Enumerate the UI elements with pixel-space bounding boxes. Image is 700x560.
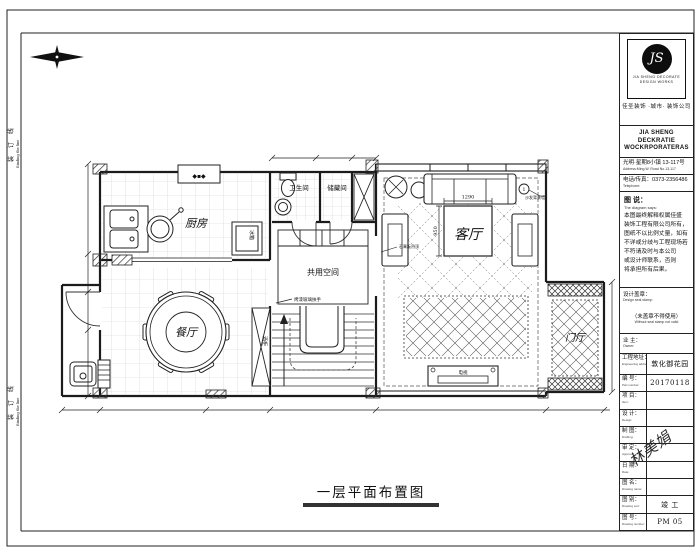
seal-warning-en: Without seal stamp not valid <box>623 320 690 324</box>
table-row-item: 项 目：Item: <box>620 392 693 409</box>
closet <box>354 174 374 220</box>
row-value <box>647 462 693 478</box>
plan-title: 一层平面布置图 <box>303 481 439 504</box>
row-value: 20170118 <box>647 375 693 391</box>
notes-line: 将承担所有后果。 <box>624 266 689 275</box>
row-label-en: Date: <box>622 470 644 474</box>
room-label-storage: 储藏间 <box>327 183 347 192</box>
row-label-en: Drafting: <box>622 435 644 439</box>
table-row-project-address: 工程地址：Engineering address: 敦化御花园 <box>620 354 693 375</box>
row-label: 图 号： <box>622 515 644 522</box>
row-value: 竣 工 <box>647 496 693 512</box>
address-cell: 光明·星期8小镇 13-117号 Address:Ming.W. Road No… <box>620 158 693 175</box>
logo-box: JS JIA SHENG DECORATE DESIGN WORKS <box>627 39 686 99</box>
keynote-number: 1 <box>522 187 525 193</box>
company-logo-icon: JS <box>642 44 672 74</box>
row-value: 敦化御花园 <box>647 354 693 374</box>
logo-caption-1: JIA SHENG DECORATE <box>628 75 685 80</box>
phone-cn: 电话/传真：0373-2356486 <box>623 177 690 184</box>
row-label-en: Item: <box>622 400 644 404</box>
owner-label-cn: 业 主： <box>623 336 690 344</box>
row-value <box>647 479 693 495</box>
owner-section: 业 主： Owner: <box>620 334 693 354</box>
notes-line: 不详或分歧与工程现场若 <box>624 239 689 248</box>
diagram-notes: 图 说： The diagram says: 本图最终解释权属佳盛 装饰工程有限… <box>620 192 693 288</box>
row-label-en: Engineering address: <box>622 362 644 366</box>
row-label-en: Drawing number: <box>622 522 644 526</box>
row-label: 图 名： <box>622 480 644 487</box>
notes-line: 本图最终解释权属佳盛 <box>624 212 689 221</box>
row-label: 图 别： <box>622 497 644 504</box>
seal-section: 设计盖章： Design seal stamp: （未盖章不得使用） Witho… <box>620 288 693 334</box>
row-label: 工程地址： <box>622 355 644 362</box>
phone-cell: 电话/传真：0373-2356486 Telephone: <box>620 175 693 192</box>
logo-section: JS JIA SHENG DECORATE DESIGN WORKS 佳圣装饰 … <box>620 34 693 126</box>
label-tv: 电视 <box>459 369 468 376</box>
binding-line-text-top: 装 订 线 <box>7 125 15 162</box>
table-row-drawing-number: 图 号：Drawing number: PM 05 <box>620 514 693 530</box>
balcony-fixtures <box>70 360 110 388</box>
binding-line-margin: 装 订 线 Binding the line 装 订 线 Binding the… <box>7 125 20 426</box>
room-label-dining: 餐厅 <box>175 326 199 339</box>
owner-label-en: Owner: <box>623 344 690 348</box>
company-en-line1: JIA SHENG DECKRATIE <box>621 130 692 145</box>
row-label-en: Part number: <box>622 383 644 387</box>
company-en-line2: WOCKRPORATERAS <box>621 145 692 153</box>
shared-cabinet <box>278 230 368 304</box>
notes-line: 或设计师联系，否则 <box>624 257 689 266</box>
drawing-sheet: 装 订 线 Binding the line 装 订 线 Binding the… <box>0 0 700 560</box>
notes-line: 不符请及时与本公司 <box>624 248 689 257</box>
notes-line: 装饰工程有限公司所有， <box>624 221 689 230</box>
seal-warning-cn: （未盖章不得使用） <box>623 312 690 320</box>
row-label-en: Design: <box>622 418 644 422</box>
address-en: Address:Ming.W. Road No.13-117 <box>623 167 690 172</box>
note-stair-rail: 烤漆玻璃扶手 <box>294 296 321 303</box>
phone-en: Telephone: <box>623 184 690 189</box>
row-label: 设 计： <box>622 411 644 418</box>
legend-stamp-glyphs: ◆▪◆ <box>192 173 206 180</box>
company-name-en: JIA SHENG DECKRATIE WOCKRPORATERAS <box>620 126 693 158</box>
seal-label-cn: 设计盖章： <box>623 290 690 298</box>
wine-cabinet <box>252 308 270 386</box>
staircase <box>272 306 374 386</box>
row-value <box>647 410 693 426</box>
compass-icon <box>30 45 84 69</box>
note-sofa-wall: 沙发背景墙 <box>525 194 545 200</box>
notes-heading-cn: 图 说： <box>624 195 689 205</box>
binding-line-en-top: Binding the line <box>16 140 20 168</box>
room-label-shared: 共用空间 <box>307 267 339 277</box>
room-label-bath: 卫生间 <box>289 183 309 192</box>
room-label-kitchen: 厨房 <box>185 217 208 230</box>
row-label-en: Drawing name: <box>622 487 644 491</box>
room-label-foyer: 门厅 <box>565 332 587 344</box>
address-cn: 光明·星期8小镇 13-117号 <box>623 160 690 167</box>
table-row-number: 编 号：Part number: 20170118 <box>620 375 693 392</box>
room-label-living: 客厅 <box>454 227 485 243</box>
row-label: 编 号： <box>622 376 644 383</box>
row-value: PM 05 <box>647 514 693 530</box>
dim-table-width: 1290 <box>462 195 475 201</box>
row-label: 项 目： <box>622 393 644 400</box>
label-fridge: 冰箱 <box>248 230 255 240</box>
binding-line-en-bottom: Binding the line <box>16 398 20 426</box>
row-value <box>647 392 693 408</box>
dim-table-depth: 950 <box>433 226 439 236</box>
table-row-design: 设 计：Design: <box>620 410 693 427</box>
row-label: 制 图： <box>622 428 644 435</box>
note-ceiling: 石膏板吊顶 <box>399 243 419 249</box>
notes-line: 图纸不以比例丈量，如有 <box>624 230 689 239</box>
seal-label-en: Design seal stamp: <box>623 298 690 302</box>
notes-heading-en: The diagram says: <box>624 205 689 210</box>
logo-caption-2: DESIGN WORKS <box>628 80 685 85</box>
table-row-drawing-sort: 图 别：Drawing sort: 竣 工 <box>620 496 693 513</box>
company-name-cn: 佳圣装饰 ·城市· 装饰公司 <box>620 102 693 110</box>
binding-line-text-bottom: 装 订 线 <box>7 383 15 420</box>
table-row-drawing-name: 图 名：Drawing name: <box>620 479 693 496</box>
row-label-en: Drawing sort: <box>622 504 644 508</box>
label-wine-cabinet: 酒柜 <box>261 336 268 346</box>
